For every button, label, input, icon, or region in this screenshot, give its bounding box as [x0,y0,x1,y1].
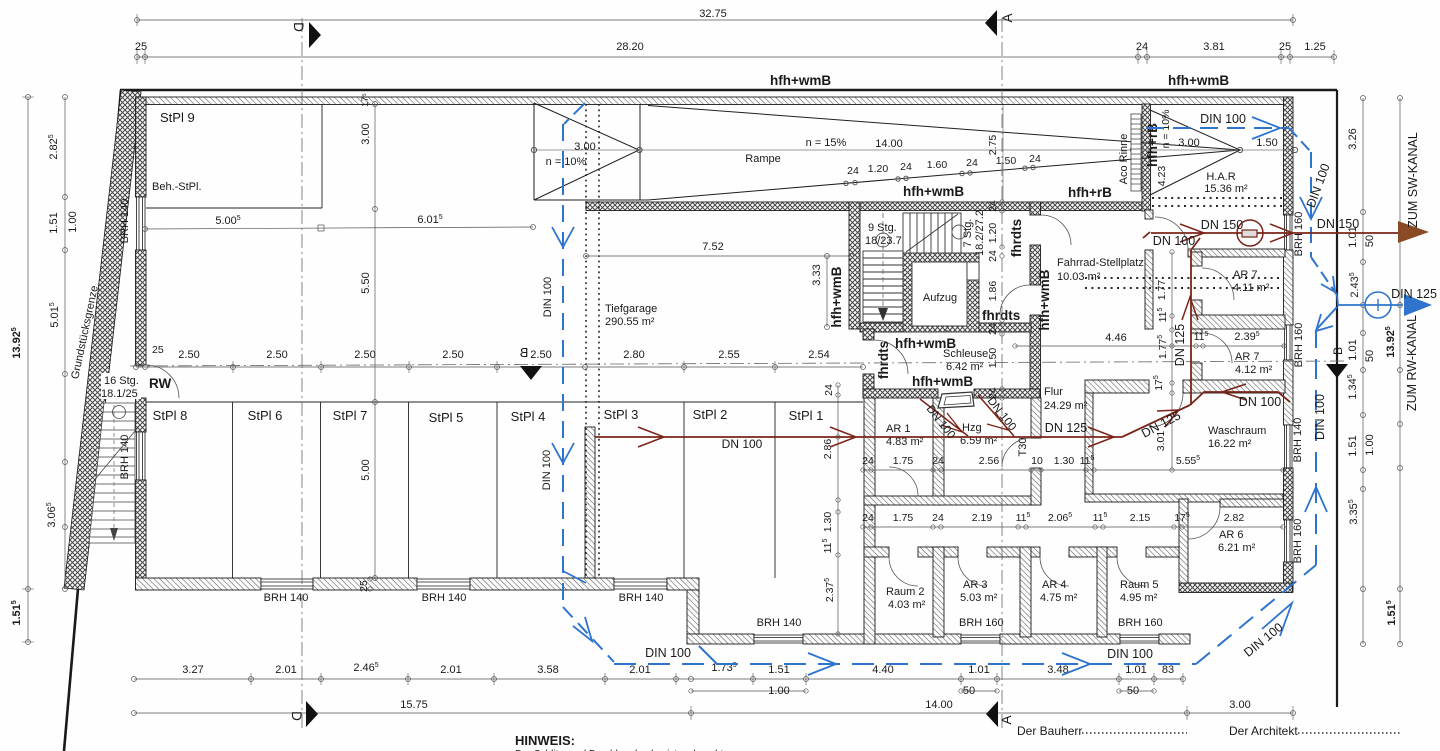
svg-text:2.82: 2.82 [1224,512,1245,524]
svg-text:2.56: 2.56 [979,455,1000,467]
svg-text:DN 100: DN 100 [722,437,763,451]
svg-text:D: D [291,22,306,32]
svg-text:DIN 100: DIN 100 [541,450,553,490]
svg-text:ZUM SW-KANAL: ZUM SW-KANAL [1406,132,1420,228]
svg-text:2.01: 2.01 [629,664,650,676]
svg-text:1.20: 1.20 [868,163,889,175]
svg-text:DN 150: DN 150 [1201,218,1243,232]
svg-text:StPl 2: StPl 2 [693,407,728,422]
svg-text:hfh+wmB: hfh+wmB [829,266,844,327]
svg-text:24: 24 [862,512,874,524]
svg-text:HINWEIS:: HINWEIS: [515,733,575,748]
svg-text:DIN 100: DIN 100 [1313,394,1327,440]
svg-text:14.00: 14.00 [925,699,953,711]
svg-text:1.60: 1.60 [927,159,948,171]
svg-text:2.55: 2.55 [718,349,739,361]
svg-text:1.50: 1.50 [987,348,999,369]
svg-text:14.00: 14.00 [875,138,903,150]
svg-text:3.33: 3.33 [811,264,823,285]
svg-text:15.75: 15.75 [400,699,428,711]
svg-text:2.50: 2.50 [354,349,375,361]
svg-text:4.12 m²: 4.12 m² [1235,364,1273,376]
svg-text:Aco Rinne: Aco Rinne [1118,134,1130,185]
svg-text:3.58: 3.58 [537,664,558,676]
svg-text:BRH 140: BRH 140 [119,199,131,244]
svg-text:10.03 m²: 10.03 m² [1057,271,1101,283]
svg-text:4.46: 4.46 [1105,332,1126,344]
svg-text:AR 1: AR 1 [886,423,910,435]
svg-text:Der Architekt: Der Architekt [1229,724,1298,738]
svg-text:2.50: 2.50 [266,349,287,361]
svg-text:BRH 140: BRH 140 [619,592,664,604]
svg-text:24: 24 [823,384,835,396]
svg-text:hfh+wmB: hfh+wmB [770,73,831,88]
svg-text:1.00: 1.00 [67,211,79,232]
svg-text:83: 83 [1162,664,1174,676]
svg-text:7 Stg.: 7 Stg. [962,219,974,248]
svg-text:50: 50 [1364,350,1376,362]
svg-text:2.50: 2.50 [530,349,551,361]
svg-text:50: 50 [963,685,975,697]
svg-text:3.81: 3.81 [1203,41,1224,53]
svg-text:BRH 140: BRH 140 [119,435,131,480]
svg-text:DIN 100: DIN 100 [1200,112,1246,126]
svg-text:hfh+wmB: hfh+wmB [912,374,973,389]
svg-text:1.50: 1.50 [1256,137,1277,149]
svg-text:7.52: 7.52 [702,241,723,253]
svg-text:4.95 m²: 4.95 m² [1120,592,1158,604]
svg-text:24: 24 [900,161,912,173]
svg-text:3.00: 3.00 [360,123,372,144]
svg-text:DIN 100: DIN 100 [1107,647,1153,661]
svg-text:25: 25 [358,580,370,592]
svg-text:5.00: 5.00 [360,459,372,480]
svg-text:1.77: 1.77 [1156,280,1168,301]
svg-text:A: A [1000,13,1015,22]
svg-text:32.75: 32.75 [699,8,727,20]
svg-text:24: 24 [987,323,999,335]
svg-text:1.30: 1.30 [822,512,834,533]
svg-text:2.01: 2.01 [440,664,461,676]
svg-text:hfh+rB: hfh+rB [1145,123,1160,167]
svg-text:2.54: 2.54 [808,349,829,361]
svg-text:fhrdts: fhrdts [982,308,1020,323]
svg-text:1.75: 1.75 [893,512,914,524]
svg-text:Raum 2: Raum 2 [886,586,925,598]
svg-text:16.22 m²: 16.22 m² [1208,438,1252,450]
svg-text:4.23: 4.23 [1156,166,1168,187]
svg-text:1.01: 1.01 [1347,339,1359,360]
svg-text:4.11 m²: 4.11 m² [1233,282,1270,294]
svg-text:StPl 8: StPl 8 [153,408,188,423]
svg-text:StPl 7: StPl 7 [333,408,368,423]
svg-text:24: 24 [932,512,944,524]
svg-text:BRH 140: BRH 140 [422,592,467,604]
svg-text:DN 125: DN 125 [1045,421,1087,435]
svg-text:hfh+wmB: hfh+wmB [1168,73,1229,88]
svg-text:1.00: 1.00 [1364,434,1376,455]
svg-text:24: 24 [862,455,874,467]
svg-text:fhrdts: fhrdts [1009,219,1024,257]
svg-text:3.00: 3.00 [1178,137,1199,149]
svg-text:24: 24 [987,250,999,262]
svg-text:25: 25 [135,41,147,53]
svg-text:StPl 3: StPl 3 [604,407,639,422]
svg-text:Aufzug: Aufzug [923,292,957,304]
svg-text:hfh+wmB: hfh+wmB [903,184,964,199]
svg-text:H.A.R: H.A.R [1206,171,1235,183]
svg-text:1.01: 1.01 [968,664,989,676]
svg-text:DN 150: DN 150 [1317,217,1359,231]
svg-text:18.1/25: 18.1/25 [101,388,138,400]
svg-text:24: 24 [847,165,859,177]
svg-text:2.75: 2.75 [987,135,999,156]
svg-text:2.86: 2.86 [822,439,834,460]
svg-text:24: 24 [966,157,978,169]
svg-text:n = 10%: n = 10% [546,156,587,168]
svg-text:Hzg: Hzg [962,422,982,434]
svg-text:BRH 160: BRH 160 [1293,212,1305,257]
svg-text:DIN 125: DIN 125 [1391,287,1437,301]
svg-text:1.75: 1.75 [893,455,914,467]
svg-text:n = 15%: n = 15% [806,137,847,149]
svg-text:290.55 m²: 290.55 m² [605,316,655,328]
svg-text:AR 3: AR 3 [963,579,987,591]
svg-text:3.00: 3.00 [574,141,595,153]
svg-text:RW: RW [149,376,172,391]
svg-text:5.50: 5.50 [360,272,372,293]
svg-text:2.15: 2.15 [1130,512,1151,524]
svg-text:3.00: 3.00 [1229,699,1250,711]
svg-text:1.25: 1.25 [1304,41,1325,53]
svg-text:1.00: 1.00 [768,685,789,697]
svg-text:DIN 100: DIN 100 [542,277,554,317]
svg-text:StPl 4: StPl 4 [511,409,546,424]
svg-text:Fahrrad-Stellplatz: Fahrrad-Stellplatz [1057,257,1144,269]
svg-text:hfh+wmB: hfh+wmB [1037,269,1052,330]
svg-text:1.51: 1.51 [768,664,789,676]
svg-text:DIN 100: DIN 100 [645,646,691,660]
svg-text:fhrdts: fhrdts [876,341,891,379]
svg-text:A: A [999,715,1014,724]
svg-text:50: 50 [1364,235,1376,247]
svg-text:15.36 m²: 15.36 m² [1204,183,1248,195]
svg-text:BRH 160: BRH 160 [959,617,1004,629]
svg-text:6.21 m²: 6.21 m² [1218,542,1256,554]
svg-text:AR 6: AR 6 [1219,529,1243,541]
svg-text:AR 4: AR 4 [1042,579,1066,591]
svg-text:24: 24 [987,200,999,212]
svg-text:9 Stg.: 9 Stg. [868,222,897,234]
svg-text:2.50: 2.50 [442,349,463,361]
svg-text:B: B [520,345,529,360]
svg-text:Beh.-StPl.: Beh.-StPl. [152,181,202,193]
svg-text:StPl 6: StPl 6 [248,408,283,423]
svg-text:3.27: 3.27 [182,664,203,676]
svg-text:BRH 160: BRH 160 [1293,323,1305,368]
svg-text:Rampe: Rampe [745,153,780,165]
svg-text:hfh+rB: hfh+rB [1068,185,1112,200]
svg-text:4.40: 4.40 [872,664,893,676]
svg-text:Waschraum: Waschraum [1208,425,1266,437]
svg-text:13.925: 13.925 [1385,326,1397,358]
svg-text:Raum 5: Raum 5 [1120,579,1159,591]
svg-text:25: 25 [1279,41,1291,53]
svg-text:1.30: 1.30 [1054,455,1075,467]
svg-text:StPl 5: StPl 5 [429,410,464,425]
svg-text:50: 50 [1127,685,1139,697]
svg-text:T30: T30 [1017,438,1029,457]
svg-text:2.50: 2.50 [178,349,199,361]
svg-text:18.2/27.2: 18.2/27.2 [974,210,986,256]
svg-text:BRH 140: BRH 140 [757,617,802,629]
svg-text:16 Stg.: 16 Stg. [104,375,139,387]
svg-text:DN 100: DN 100 [1153,234,1195,248]
svg-text:B: B [1331,347,1345,355]
svg-text:13.925: 13.925 [11,327,23,359]
svg-text:3.26: 3.26 [1347,128,1359,149]
svg-text:24: 24 [932,455,944,467]
svg-text:DN 100: DN 100 [1239,395,1281,409]
svg-text:AR 7: AR 7 [1233,269,1257,281]
svg-text:17⁵: 17⁵ [360,93,370,107]
svg-text:18/23.7: 18/23.7 [865,235,902,247]
svg-text:4.03 m²: 4.03 m² [888,599,926,611]
svg-text:Der Bauherr: Der Bauherr [1017,724,1082,738]
svg-text:1.51: 1.51 [1347,435,1359,456]
svg-text:1.86: 1.86 [987,281,999,302]
svg-text:1.20: 1.20 [987,223,999,244]
svg-text:28.20: 28.20 [616,41,644,53]
svg-text:1.51: 1.51 [48,212,60,233]
svg-text:10: 10 [1031,455,1043,467]
svg-text:BRH 160: BRH 160 [1292,519,1304,564]
svg-text:BRH 160: BRH 160 [1118,617,1163,629]
svg-text:DN 125: DN 125 [1173,324,1187,366]
svg-text:StPl 9: StPl 9 [160,110,195,125]
svg-text:4.75 m²: 4.75 m² [1040,592,1078,604]
svg-text:D: D [289,711,304,721]
svg-text:2.19: 2.19 [972,512,993,524]
svg-text:Flur: Flur [1044,386,1063,398]
svg-text:hfh+wmB: hfh+wmB [895,336,956,351]
svg-text:ZUM RW-KANAL: ZUM RW-KANAL [1405,315,1419,411]
svg-text:BRH 140: BRH 140 [1292,418,1304,463]
svg-text:1.50: 1.50 [996,155,1017,167]
svg-text:25: 25 [152,344,164,356]
svg-text:2.80: 2.80 [623,349,644,361]
svg-text:Tiefgarage: Tiefgarage [605,303,657,315]
svg-text:1.01: 1.01 [1125,664,1146,676]
svg-text:5.03 m²: 5.03 m² [960,592,998,604]
svg-text:2.01: 2.01 [275,664,296,676]
svg-text:StPl 1: StPl 1 [789,408,824,423]
svg-text:24: 24 [1029,153,1041,165]
svg-text:24: 24 [1136,41,1148,53]
svg-text:24.29 m²: 24.29 m² [1044,400,1088,412]
